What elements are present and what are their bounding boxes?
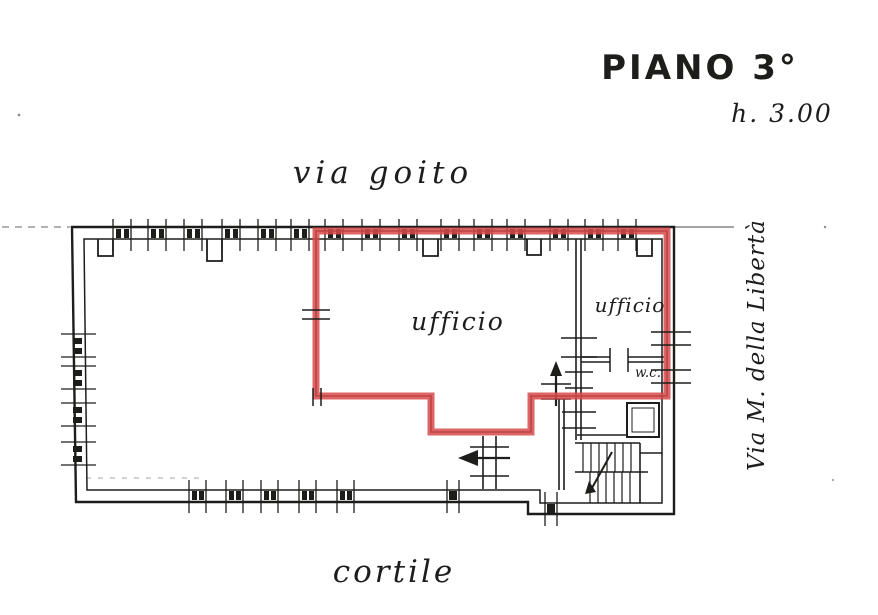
courtyard-label: cortile [333, 554, 455, 590]
interior-walls [561, 239, 664, 440]
speck [824, 226, 826, 228]
wc-wall [581, 357, 664, 362]
entrance-passage [458, 436, 510, 489]
floor-label: PIANO 3° [601, 48, 799, 88]
passage-walls [483, 436, 496, 489]
extension-lines [2, 227, 734, 478]
room-label-wc: w.c. [635, 365, 661, 381]
building-outline [72, 227, 674, 514]
speck [18, 114, 21, 117]
outer-wall-line [72, 227, 674, 514]
office-divider-wall [576, 239, 581, 440]
shaft-inner [632, 408, 654, 432]
entry-arrow-left-icon [458, 450, 510, 466]
ceiling-height-label: h. 3.00 [731, 99, 833, 128]
wc-door-jambs [610, 348, 628, 372]
stair-treads [583, 443, 631, 503]
stairwell [559, 399, 662, 503]
street-label-top: via goito [293, 155, 473, 191]
elevator-shaft [627, 403, 659, 437]
arrow-shaft [592, 452, 612, 488]
speck [832, 479, 834, 481]
arrow-head [458, 450, 478, 466]
floor-plan-page: PIANO 3° h. 3.00 via goito ufficio uffic… [0, 0, 878, 615]
floor-plan-drawing: PIANO 3° h. 3.00 via goito ufficio uffic… [0, 0, 878, 615]
room-label-office-main: ufficio [411, 307, 505, 336]
left-wall-windows [61, 334, 96, 465]
top-wall-windows [113, 219, 636, 251]
wall-pilasters [98, 239, 652, 261]
street-label-right: Via M. della Libertà [744, 219, 770, 471]
room-label-office-small: ufficio [595, 293, 666, 317]
arrow-head [550, 361, 562, 376]
office-divider-door-ticks [561, 338, 597, 428]
